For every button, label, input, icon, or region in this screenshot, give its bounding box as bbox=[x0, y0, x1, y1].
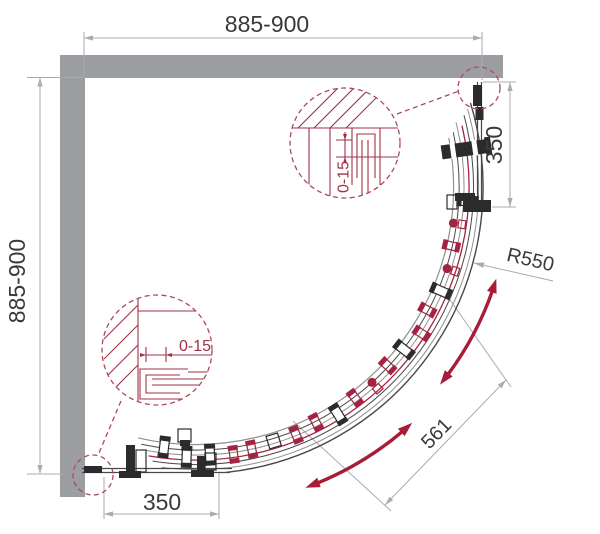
label-bottom-adjustment: 0-15 bbox=[179, 338, 211, 355]
track-arc bbox=[141, 132, 459, 450]
label-opening-561: 561 bbox=[417, 414, 456, 453]
label-bottom-350: 350 bbox=[143, 489, 181, 515]
top-wall-profile-block bbox=[473, 85, 482, 106]
arrowhead bbox=[166, 353, 172, 357]
shower-enclosure-technical-drawing: 885-900 885-900 350 350 R550 561 0-15 0-… bbox=[0, 0, 600, 534]
label-top-adjustment: 0-15 bbox=[336, 161, 353, 193]
roller-clamp-outline bbox=[266, 433, 281, 449]
arrowhead bbox=[140, 353, 146, 357]
wall-profile-section bbox=[146, 375, 180, 393]
track-arc bbox=[138, 138, 453, 445]
straight-panels bbox=[82, 82, 482, 473]
clamp-cap bbox=[205, 460, 216, 466]
arrowhead bbox=[104, 511, 113, 516]
arrowhead bbox=[473, 35, 482, 40]
clamp-cap bbox=[307, 412, 318, 421]
arrowhead bbox=[37, 465, 42, 474]
panel-bracket bbox=[191, 470, 214, 477]
roller-clamp-black bbox=[392, 338, 416, 360]
top-detail-leader bbox=[397, 91, 459, 114]
track-arc bbox=[153, 115, 474, 464]
arrowhead bbox=[343, 134, 347, 140]
roller-clamp-red bbox=[227, 445, 239, 464]
panel-bracket bbox=[463, 200, 491, 212]
clamp-cap bbox=[204, 443, 215, 449]
arrowhead bbox=[487, 279, 497, 294]
arrowhead bbox=[305, 478, 320, 488]
roller-clamp-red bbox=[288, 424, 304, 444]
clamp-body bbox=[205, 446, 215, 462]
clamp-body bbox=[182, 449, 192, 465]
panel-bracket bbox=[126, 445, 135, 475]
clamp-cap bbox=[181, 446, 192, 451]
panel-bracket bbox=[455, 193, 475, 201]
panel-bracket bbox=[197, 456, 205, 472]
arrowhead bbox=[507, 198, 512, 207]
arrowhead bbox=[210, 511, 219, 516]
arrowhead bbox=[507, 82, 512, 91]
wall-profile-section bbox=[357, 134, 375, 178]
clamp-cap bbox=[229, 458, 240, 464]
sliding-direction-arrow bbox=[448, 291, 493, 375]
roller-clamp-black bbox=[181, 446, 193, 468]
wall-profile-section bbox=[140, 369, 188, 399]
sliding-direction-arrow bbox=[317, 431, 402, 483]
arrowhead bbox=[474, 263, 484, 268]
roller-clamp-black bbox=[328, 402, 349, 426]
clamp-cap bbox=[417, 301, 426, 312]
roller-clamp-black bbox=[204, 443, 216, 466]
bottom-detail-leader bbox=[99, 401, 121, 453]
end-hardware bbox=[84, 85, 491, 478]
clamp-body bbox=[266, 433, 281, 449]
door-sliding-arrows bbox=[305, 279, 496, 488]
clamp-cap bbox=[454, 242, 461, 253]
clamp-cap bbox=[245, 439, 256, 446]
track-arc bbox=[145, 122, 464, 455]
panel-bracket bbox=[180, 440, 190, 446]
roller-clamp-red bbox=[417, 301, 438, 318]
roller-clamp-black bbox=[157, 435, 171, 458]
left-wall bbox=[60, 55, 85, 497]
arrowhead bbox=[84, 35, 93, 40]
clamp-cap bbox=[181, 463, 192, 468]
top-wall bbox=[60, 55, 503, 78]
clamp-cap bbox=[441, 239, 448, 250]
drawing-canvas: 885-900 885-900 350 350 R550 561 0-15 0-… bbox=[0, 0, 600, 534]
arrowhead bbox=[37, 78, 42, 87]
label-left-depth: 885-900 bbox=[4, 239, 30, 323]
label-top-width: 885-900 bbox=[225, 11, 309, 37]
clamp-cap bbox=[227, 445, 238, 451]
label-right-350: 350 bbox=[481, 126, 507, 164]
bottom-wall-profile-block bbox=[84, 466, 102, 473]
